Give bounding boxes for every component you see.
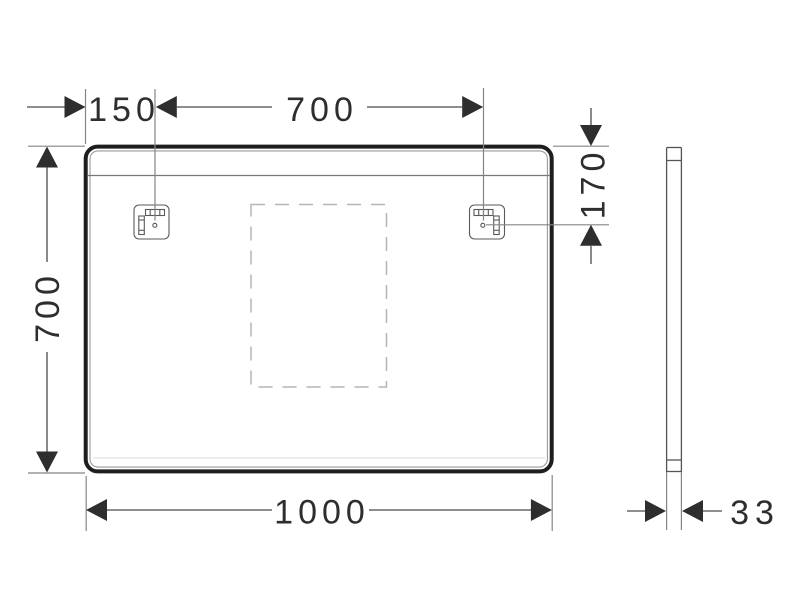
svg-text:33: 33 <box>730 494 780 532</box>
svg-text:700: 700 <box>286 91 358 129</box>
svg-text:170: 170 <box>575 148 613 220</box>
svg-text:700: 700 <box>29 271 67 343</box>
svg-text:150: 150 <box>88 91 160 129</box>
svg-text:1000: 1000 <box>274 494 370 532</box>
